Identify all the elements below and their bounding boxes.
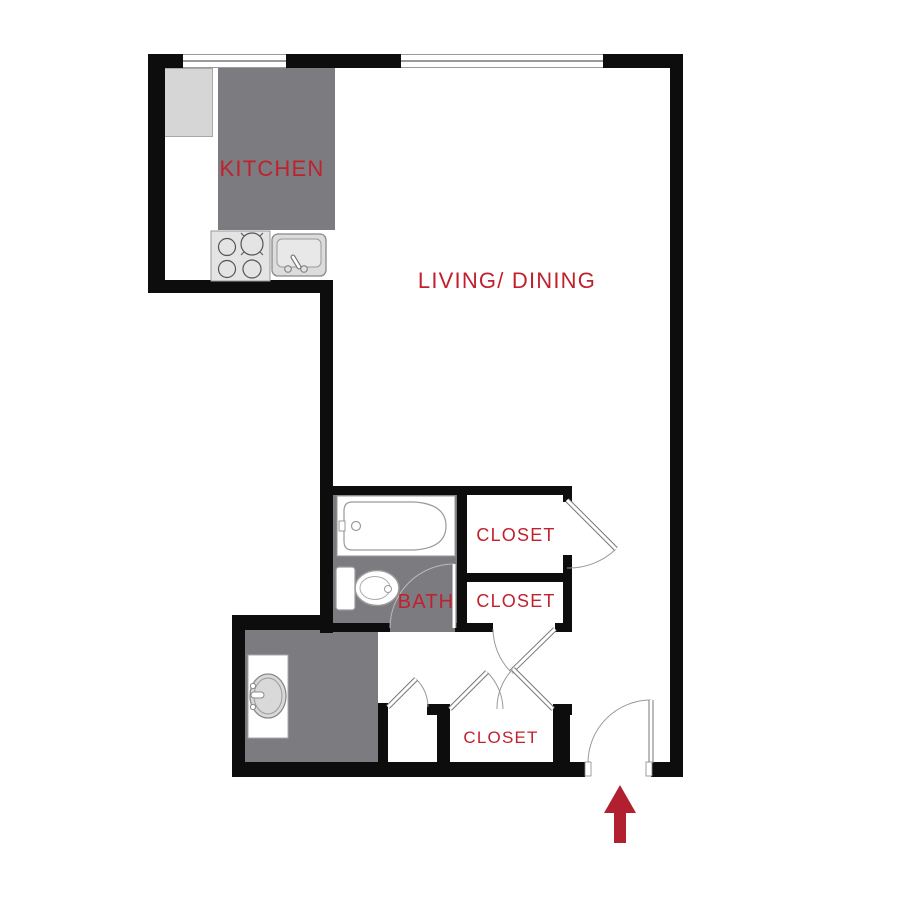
floorplan: KITCHEN LIVING/ DINING BATH CLOSET CLOSE… [0, 0, 900, 900]
entry-arrow-icon [604, 785, 636, 843]
living-dining-label: LIVING/ DINING [397, 268, 617, 294]
door-closet-top [567, 500, 616, 568]
closet-middle-label: CLOSET [466, 591, 566, 612]
door-closet-bottom-right [497, 669, 553, 709]
door-closet-bottom-left [450, 672, 503, 709]
closet-top-label: CLOSET [466, 525, 566, 546]
vanity-sink [248, 655, 288, 738]
kitchen-label: KITCHEN [207, 156, 337, 182]
door-entry [585, 700, 652, 776]
closet-bottom-label: CLOSET [451, 728, 551, 748]
door-alcove [388, 679, 428, 707]
stove-4-burners [211, 231, 270, 281]
bath-label: BATH [386, 591, 466, 614]
bathtub [337, 496, 455, 556]
door-closet-middle [493, 629, 555, 672]
fixtures-layer [0, 0, 900, 900]
kitchen-sink [272, 234, 326, 276]
